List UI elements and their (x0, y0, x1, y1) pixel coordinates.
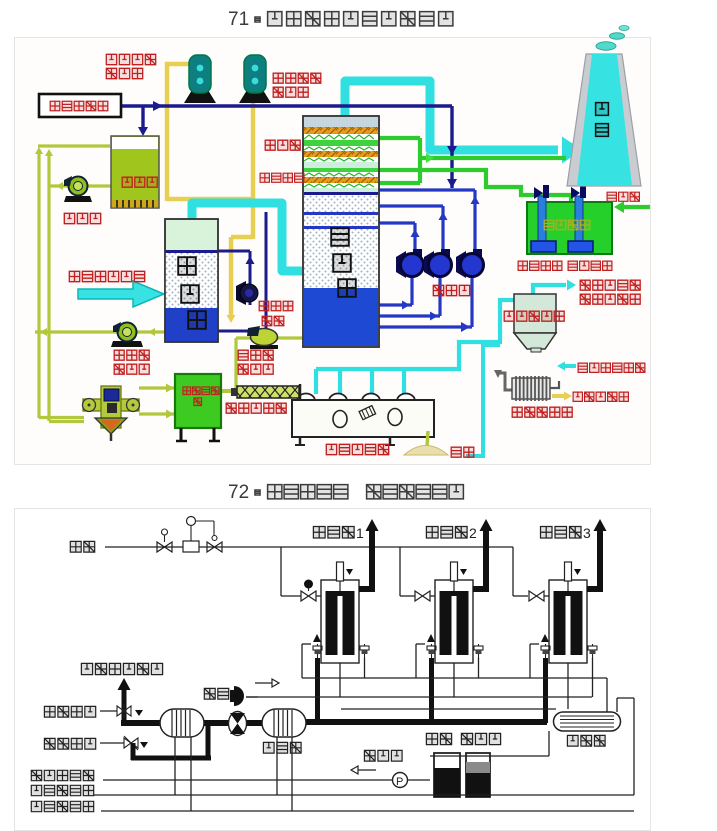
svg-text:1: 1 (356, 525, 364, 541)
svg-text:2: 2 (469, 525, 477, 541)
svg-text:72: 72 (228, 482, 249, 503)
svg-text:P: P (396, 776, 403, 788)
svg-text:3: 3 (583, 525, 591, 541)
svg-text:71: 71 (228, 9, 249, 30)
